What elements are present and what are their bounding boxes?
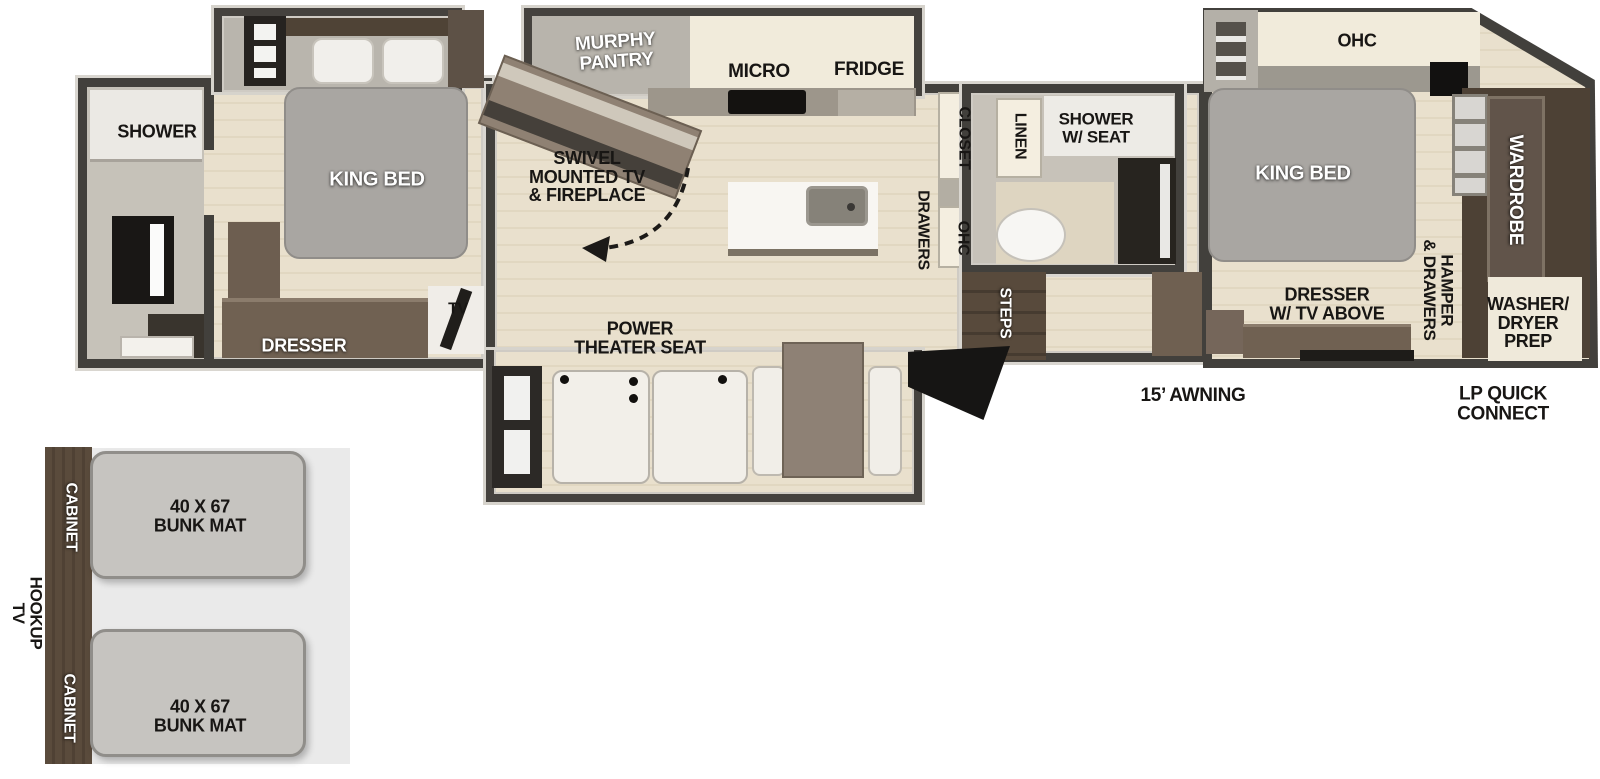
toilet <box>996 208 1066 262</box>
front-left-window <box>1216 22 1246 80</box>
rear-bath-wall-lower <box>204 215 214 359</box>
label-dresser-tv-above: DRESSER W/ TV ABOVE <box>1269 285 1384 322</box>
label-drawers: DRAWERS <box>914 190 931 270</box>
fridge-base <box>838 90 914 116</box>
label-linen: LINEN <box>1011 113 1028 160</box>
label-closet: CLOSET <box>955 106 972 169</box>
theater-seat-right <box>652 370 748 484</box>
island-sink <box>806 186 868 226</box>
front-left-cabinet <box>1204 10 1258 92</box>
rear-tv-screen <box>440 288 472 350</box>
theater-seat-button-4 <box>718 375 727 384</box>
label-tv-hookup: TV HOOKUP <box>9 577 44 650</box>
dinette-table <box>782 342 864 478</box>
label-bunk-mat-upper: 40 X 67 BUNK MAT <box>154 497 246 534</box>
sofa-slide-window <box>492 366 542 488</box>
label-steps: STEPS <box>996 288 1013 339</box>
rear-slide-window <box>244 16 286 86</box>
front-bench <box>1206 310 1244 354</box>
rear-wardrobe <box>448 10 484 88</box>
label-ohc-mid: OHC <box>954 221 971 256</box>
label-fridge: FRIDGE <box>834 60 904 80</box>
label-wardrobe: WARDROBE <box>1505 135 1525 246</box>
label-cabinet-upper: CABINET <box>62 482 79 551</box>
cooktop <box>728 90 806 114</box>
label-washer-dryer: WASHER/ DRYER PREP <box>1487 295 1569 351</box>
label-front-king-bed: KING BED <box>1255 164 1350 185</box>
sofa-slide-window-pane-bottom <box>504 430 530 474</box>
sofa-slide-window-pane-top <box>504 376 530 420</box>
rear-headboard <box>272 18 450 36</box>
bunk-mat-lower <box>90 629 306 757</box>
label-bunk-mat-lower: 40 X 67 BUNK MAT <box>154 697 246 734</box>
hall-cabinet <box>1152 272 1202 356</box>
rear-bath-wall-upper <box>204 87 214 150</box>
rear-pillow-left <box>312 38 374 84</box>
front-right-window <box>1452 94 1488 196</box>
theater-seat-button-1 <box>560 375 569 384</box>
rear-bath-window <box>112 216 174 304</box>
theater-seat-left <box>552 370 650 484</box>
label-ohc-front: OHC <box>1337 32 1376 51</box>
label-micro: MICRO <box>728 62 790 82</box>
label-murphy-pantry: MURPHY PANTRY <box>574 29 657 74</box>
label-awning: 15’ AWNING <box>1140 386 1245 406</box>
label-rear-shower: SHOWER <box>117 123 196 142</box>
rear-slide-window-pane <box>254 24 276 78</box>
dinette-bench-left <box>752 366 786 476</box>
rear-bath-window-pane <box>150 224 164 296</box>
entry-door <box>908 346 1010 420</box>
kitchen-upper-cabinets <box>690 16 914 92</box>
label-lp-quick-connect: LP QUICK CONNECT <box>1457 384 1549 424</box>
rear-bath-vanity <box>120 336 194 358</box>
rear-pillow-right <box>382 38 444 84</box>
front-tv-strip <box>1300 350 1414 361</box>
mid-shower-dark <box>1118 158 1176 264</box>
mid-shower-glass <box>1160 164 1170 258</box>
kitchen-island <box>728 182 878 256</box>
theater-seat-button-3 <box>629 394 638 403</box>
label-swivel-tv: SWIVEL MOUNTED TV & FIREPLACE <box>529 149 646 205</box>
rear-tv-unit <box>428 286 484 354</box>
theater-seat-button-2 <box>629 377 638 386</box>
rear-nightstand <box>228 222 280 304</box>
label-rear-king-bed: KING BED <box>329 170 424 191</box>
label-rear-tv: TV <box>448 302 468 319</box>
label-shower-w-seat: SHOWER W/ SEAT <box>1059 110 1134 145</box>
label-rear-dresser: DRESSER <box>262 337 347 356</box>
sink-drain <box>847 203 855 211</box>
rv-floorplan: SHOWER KING BED DRESSER TV MURPHY PANTRY… <box>0 0 1600 779</box>
label-hamper-drawers: HAMPER & DRAWERS <box>1420 239 1455 340</box>
label-cabinet-lower: CABINET <box>60 673 77 742</box>
label-power-theater: POWER THEATER SEAT <box>574 319 706 356</box>
dinette-bench-right <box>868 366 902 476</box>
